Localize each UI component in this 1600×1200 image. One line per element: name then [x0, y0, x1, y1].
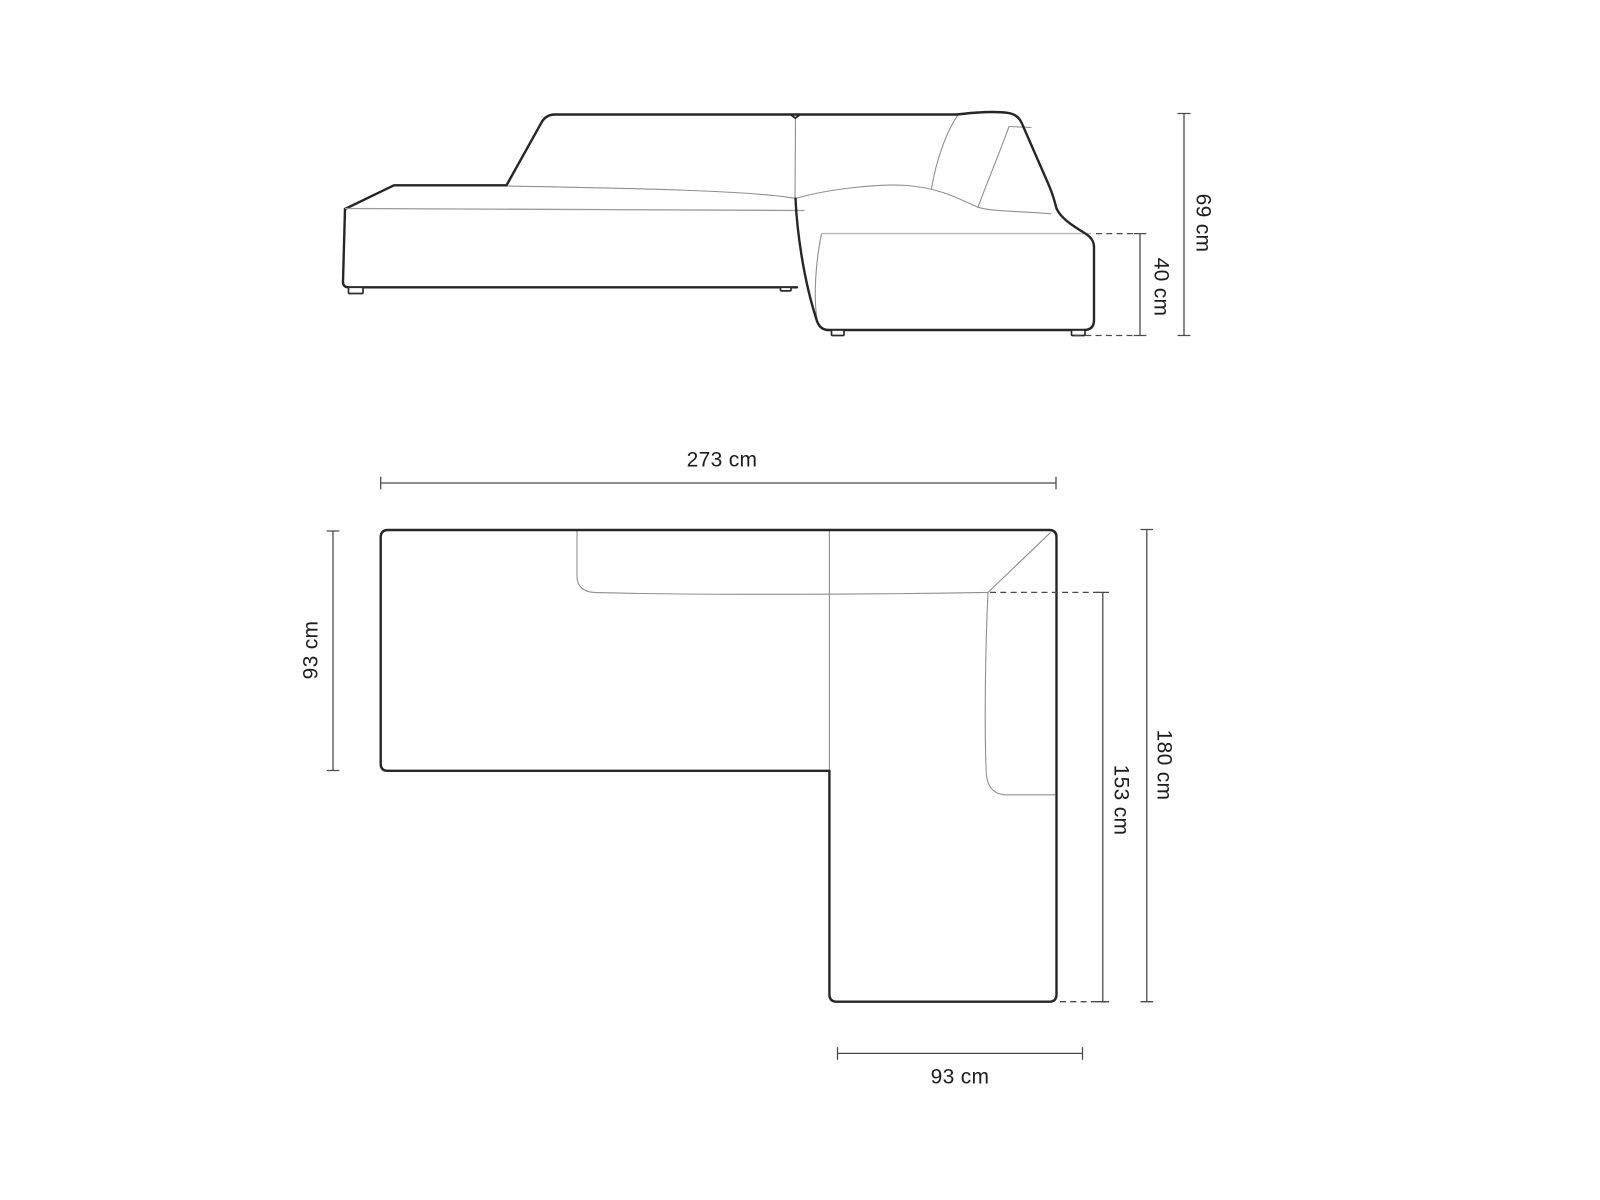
- plan-dimension-lines: [327, 477, 1153, 1060]
- dimension-label-chaise-inner-length: 153 cm: [1111, 765, 1132, 836]
- dimension-line-180cm: [1141, 530, 1154, 1002]
- elevation-back-cushion-right-seam: [978, 127, 1031, 208]
- plan-extension-dashed-lines: [990, 592, 1107, 1001]
- dimension-label-total-width: 273 cm: [687, 450, 758, 471]
- plan-armrest-inner-edge: [985, 592, 1055, 794]
- dimension-label-seat-height: 40 cm: [1151, 258, 1172, 317]
- elevation-right-module-right-leg: [1072, 330, 1086, 336]
- elevation-chaise-front-inner-seam: [815, 234, 821, 320]
- plan-outline: [381, 530, 1057, 1002]
- elevation-right-seat-cushion-seam: [796, 185, 1052, 214]
- dimension-diagram: 69 cm 40 cm 273 cm 93 cm 180 cm 153 cm 9…: [0, 0, 1600, 1200]
- dimension-label-chaise-width: 93 cm: [931, 1067, 990, 1088]
- elevation-left-module-outline: [343, 209, 797, 287]
- elevation-extension-dashed-lines: [1075, 234, 1137, 336]
- elevation-backrest-outline: [345, 115, 957, 210]
- dimension-line-93cm-bottom: [838, 1047, 1083, 1060]
- elevation-back-cushion-divider-seam: [795, 117, 796, 198]
- elevation-right-module-left-leg: [832, 330, 845, 336]
- elevation-left-module-left-leg: [349, 287, 364, 293]
- elevation-seat-surface-seam: [507, 186, 796, 199]
- sofa-plan-view-drawing: [381, 530, 1057, 1002]
- dimension-label-total-height: 69 cm: [1193, 194, 1214, 253]
- elevation-front-top-edge: [346, 209, 805, 211]
- elevation-left-module-right-leg: [781, 287, 792, 291]
- dimension-line-40cm: [1134, 234, 1147, 336]
- dimension-line-93cm-left: [327, 531, 340, 771]
- elevation-back-cushion-left-seam: [932, 116, 958, 189]
- dimension-label-right-depth: 180 cm: [1154, 730, 1175, 801]
- elevation-dimension-lines: [1075, 114, 1191, 336]
- plan-backrest-inner-edge: [577, 531, 988, 594]
- dimension-line-69cm: [1178, 114, 1191, 336]
- line-art: [0, 0, 1600, 1200]
- dimension-label-left-depth: 93 cm: [301, 621, 322, 680]
- elevation-right-module-outline: [796, 112, 1095, 330]
- dimension-line-153cm: [1097, 592, 1110, 1001]
- dimension-line-273cm: [381, 477, 1056, 490]
- sofa-elevation-drawing: [343, 112, 1094, 336]
- plan-corner-diagonal: [988, 533, 1050, 593]
